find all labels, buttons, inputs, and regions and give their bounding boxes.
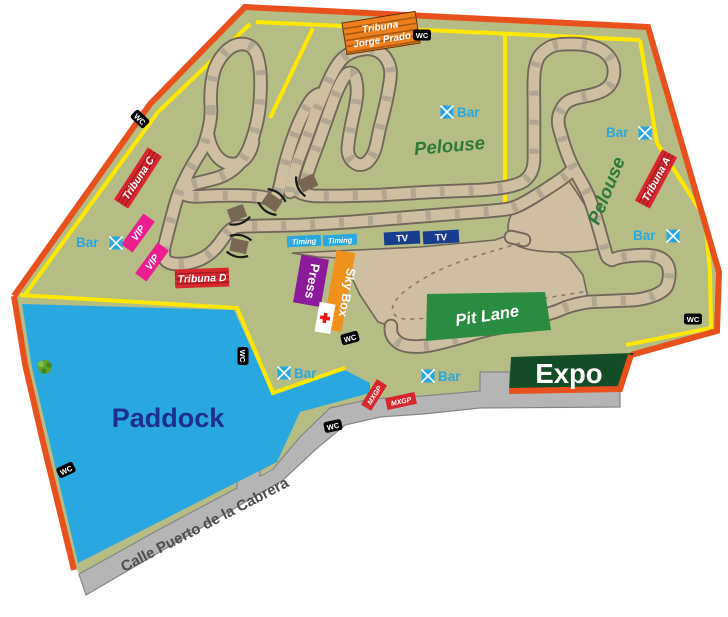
svg-text:Bar: Bar: [76, 235, 99, 250]
svg-text:Timing: Timing: [292, 236, 317, 246]
svg-text:Bar: Bar: [294, 366, 317, 381]
svg-text:Bar: Bar: [438, 369, 461, 384]
svg-text:Bar: Bar: [633, 228, 656, 243]
svg-text:Bar: Bar: [606, 125, 629, 140]
svg-text:Bar: Bar: [457, 105, 480, 120]
svg-text:TV: TV: [435, 232, 448, 244]
svg-text:TV: TV: [396, 233, 409, 245]
svg-text:Paddock: Paddock: [112, 403, 226, 433]
svg-text:Timing: Timing: [328, 235, 353, 245]
svg-text:Tribuna D: Tribuna D: [177, 272, 227, 286]
svg-text:Expo: Expo: [535, 358, 602, 389]
